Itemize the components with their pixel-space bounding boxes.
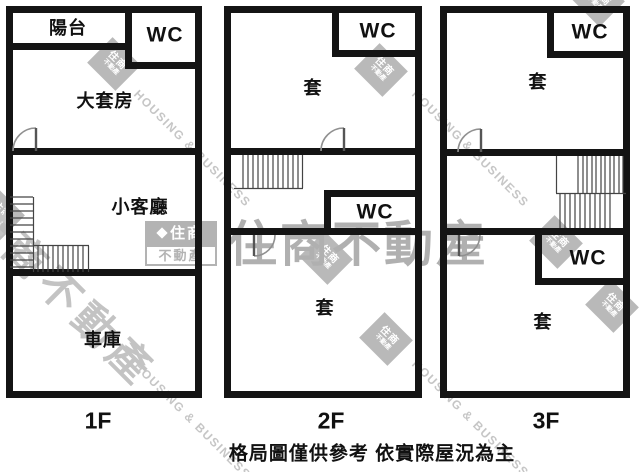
door-swing-3f-top: [458, 129, 481, 152]
stairs-2f: [234, 155, 303, 189]
inner-walls-3f: [440, 6, 630, 284]
floorplan-linework: [0, 0, 640, 472]
door-swing-2f-top: [321, 128, 344, 151]
floorplan-1f: [6, 6, 202, 395]
door-swing-1f: [13, 128, 36, 151]
stairs-3f: [556, 156, 626, 228]
floorplan-3f: [440, 6, 630, 395]
inner-walls-2f: [224, 6, 422, 235]
stairs-1f: [10, 197, 89, 272]
outer-wall-3f: [444, 10, 627, 395]
door-swing-3f-bottom: [459, 235, 480, 256]
floorplan-2f: [224, 6, 422, 395]
door-swing-2f-bottom: [254, 235, 275, 256]
floorplan-image: 住商 不動產 住商 不動產 住商 不動產 住商 不動產 住商 不動產 住商 不動…: [0, 0, 640, 472]
outer-wall-2f: [228, 10, 419, 395]
